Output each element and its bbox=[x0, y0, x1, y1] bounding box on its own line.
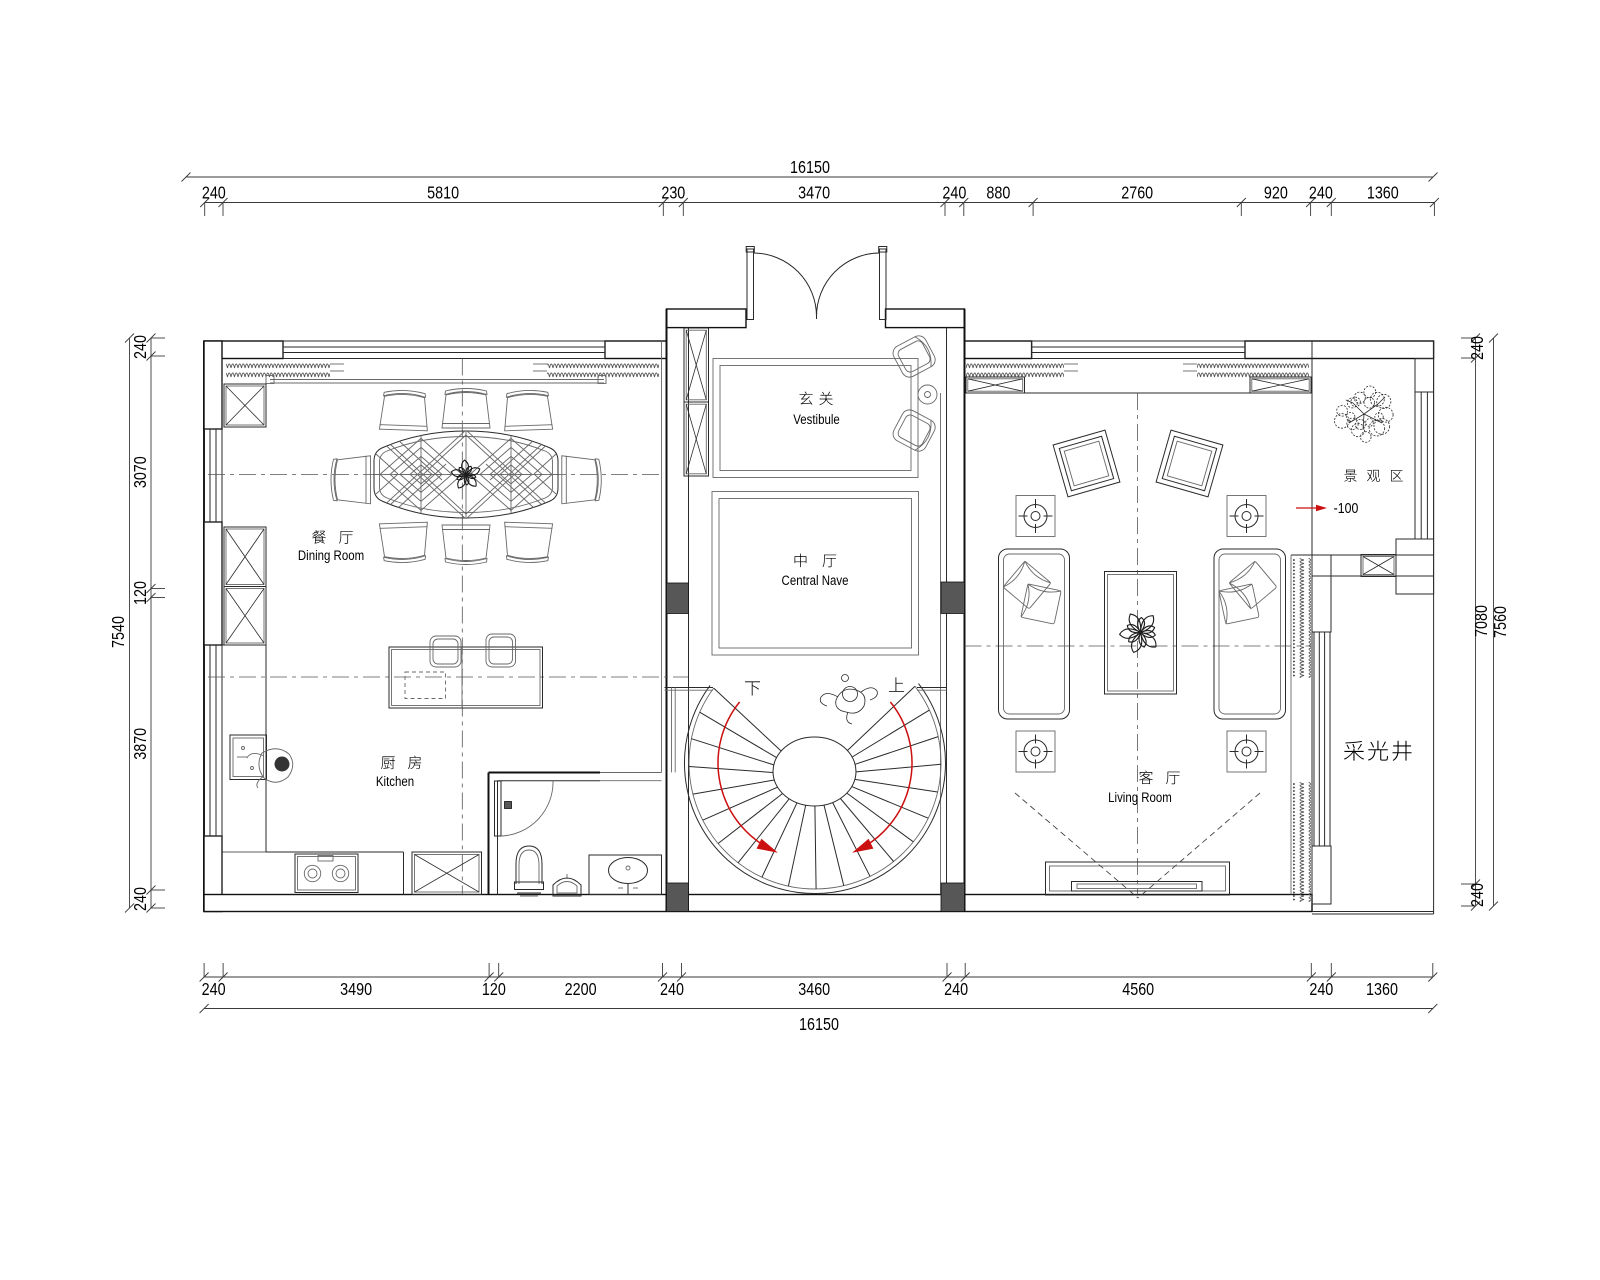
svg-text:5810: 5810 bbox=[427, 184, 459, 203]
svg-text:7540: 7540 bbox=[110, 616, 129, 648]
svg-text:240: 240 bbox=[202, 184, 226, 203]
svg-text:1360: 1360 bbox=[1367, 184, 1399, 203]
svg-text:240: 240 bbox=[942, 184, 966, 203]
svg-text:3070: 3070 bbox=[132, 456, 151, 488]
svg-text:3490: 3490 bbox=[340, 981, 372, 1000]
svg-text:240: 240 bbox=[1469, 336, 1488, 360]
svg-text:-100: -100 bbox=[1334, 500, 1359, 516]
svg-text:2200: 2200 bbox=[565, 981, 597, 1000]
svg-text:7080: 7080 bbox=[1473, 605, 1492, 637]
svg-text:Central Nave: Central Nave bbox=[782, 573, 849, 588]
svg-text:3470: 3470 bbox=[798, 184, 830, 203]
svg-text:Dining Room: Dining Room bbox=[298, 548, 364, 563]
svg-text:1360: 1360 bbox=[1366, 981, 1398, 1000]
svg-text:7560: 7560 bbox=[1492, 606, 1511, 638]
svg-text:2760: 2760 bbox=[1121, 184, 1153, 203]
svg-text:920: 920 bbox=[1264, 184, 1288, 203]
svg-text:Kitchen: Kitchen bbox=[376, 774, 414, 789]
svg-text:240: 240 bbox=[1309, 981, 1333, 1000]
svg-text:120: 120 bbox=[482, 981, 506, 1000]
svg-text:230: 230 bbox=[661, 184, 685, 203]
svg-text:3460: 3460 bbox=[798, 981, 830, 1000]
svg-text:3870: 3870 bbox=[132, 728, 151, 760]
svg-text:Living Room: Living Room bbox=[1108, 790, 1172, 805]
svg-text:240: 240 bbox=[1469, 883, 1488, 907]
svg-text:Vestibule: Vestibule bbox=[793, 412, 840, 427]
svg-text:880: 880 bbox=[986, 184, 1010, 203]
svg-text:16150: 16150 bbox=[799, 1016, 839, 1035]
svg-text:240: 240 bbox=[660, 981, 684, 1000]
svg-text:120: 120 bbox=[132, 581, 151, 605]
svg-text:4560: 4560 bbox=[1122, 981, 1154, 1000]
svg-text:240: 240 bbox=[132, 335, 151, 359]
svg-text:240: 240 bbox=[1309, 184, 1333, 203]
svg-text:16150: 16150 bbox=[790, 159, 830, 178]
svg-text:240: 240 bbox=[132, 887, 151, 911]
svg-text:240: 240 bbox=[944, 981, 968, 1000]
svg-text:240: 240 bbox=[202, 981, 226, 1000]
